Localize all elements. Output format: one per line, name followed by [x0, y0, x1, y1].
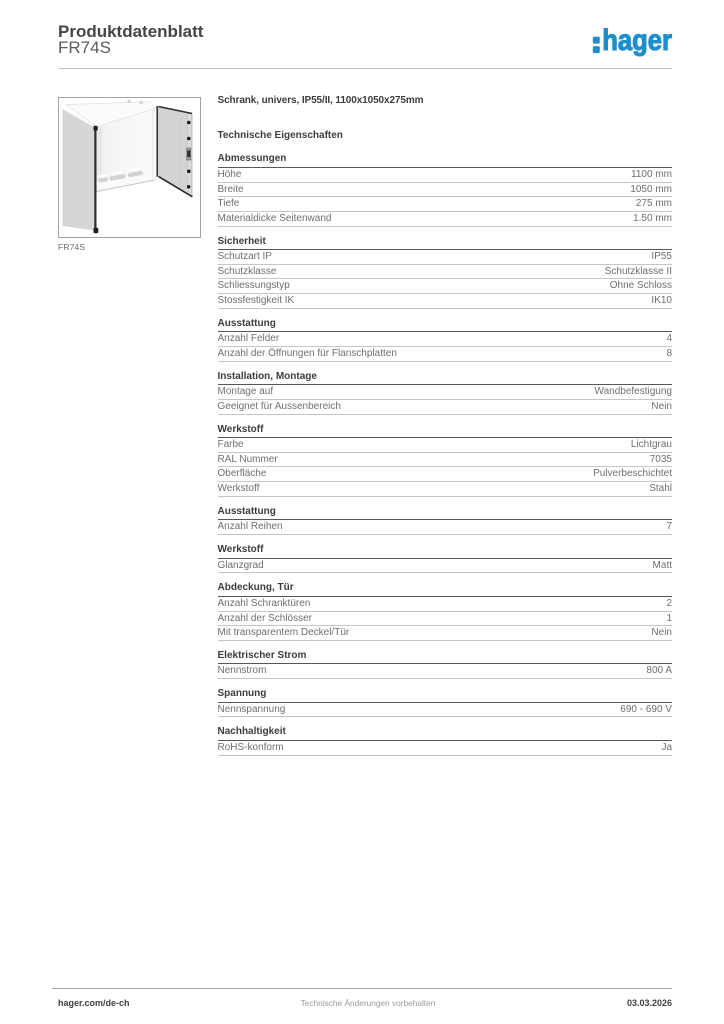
svg-text:hager: hager: [602, 24, 672, 57]
